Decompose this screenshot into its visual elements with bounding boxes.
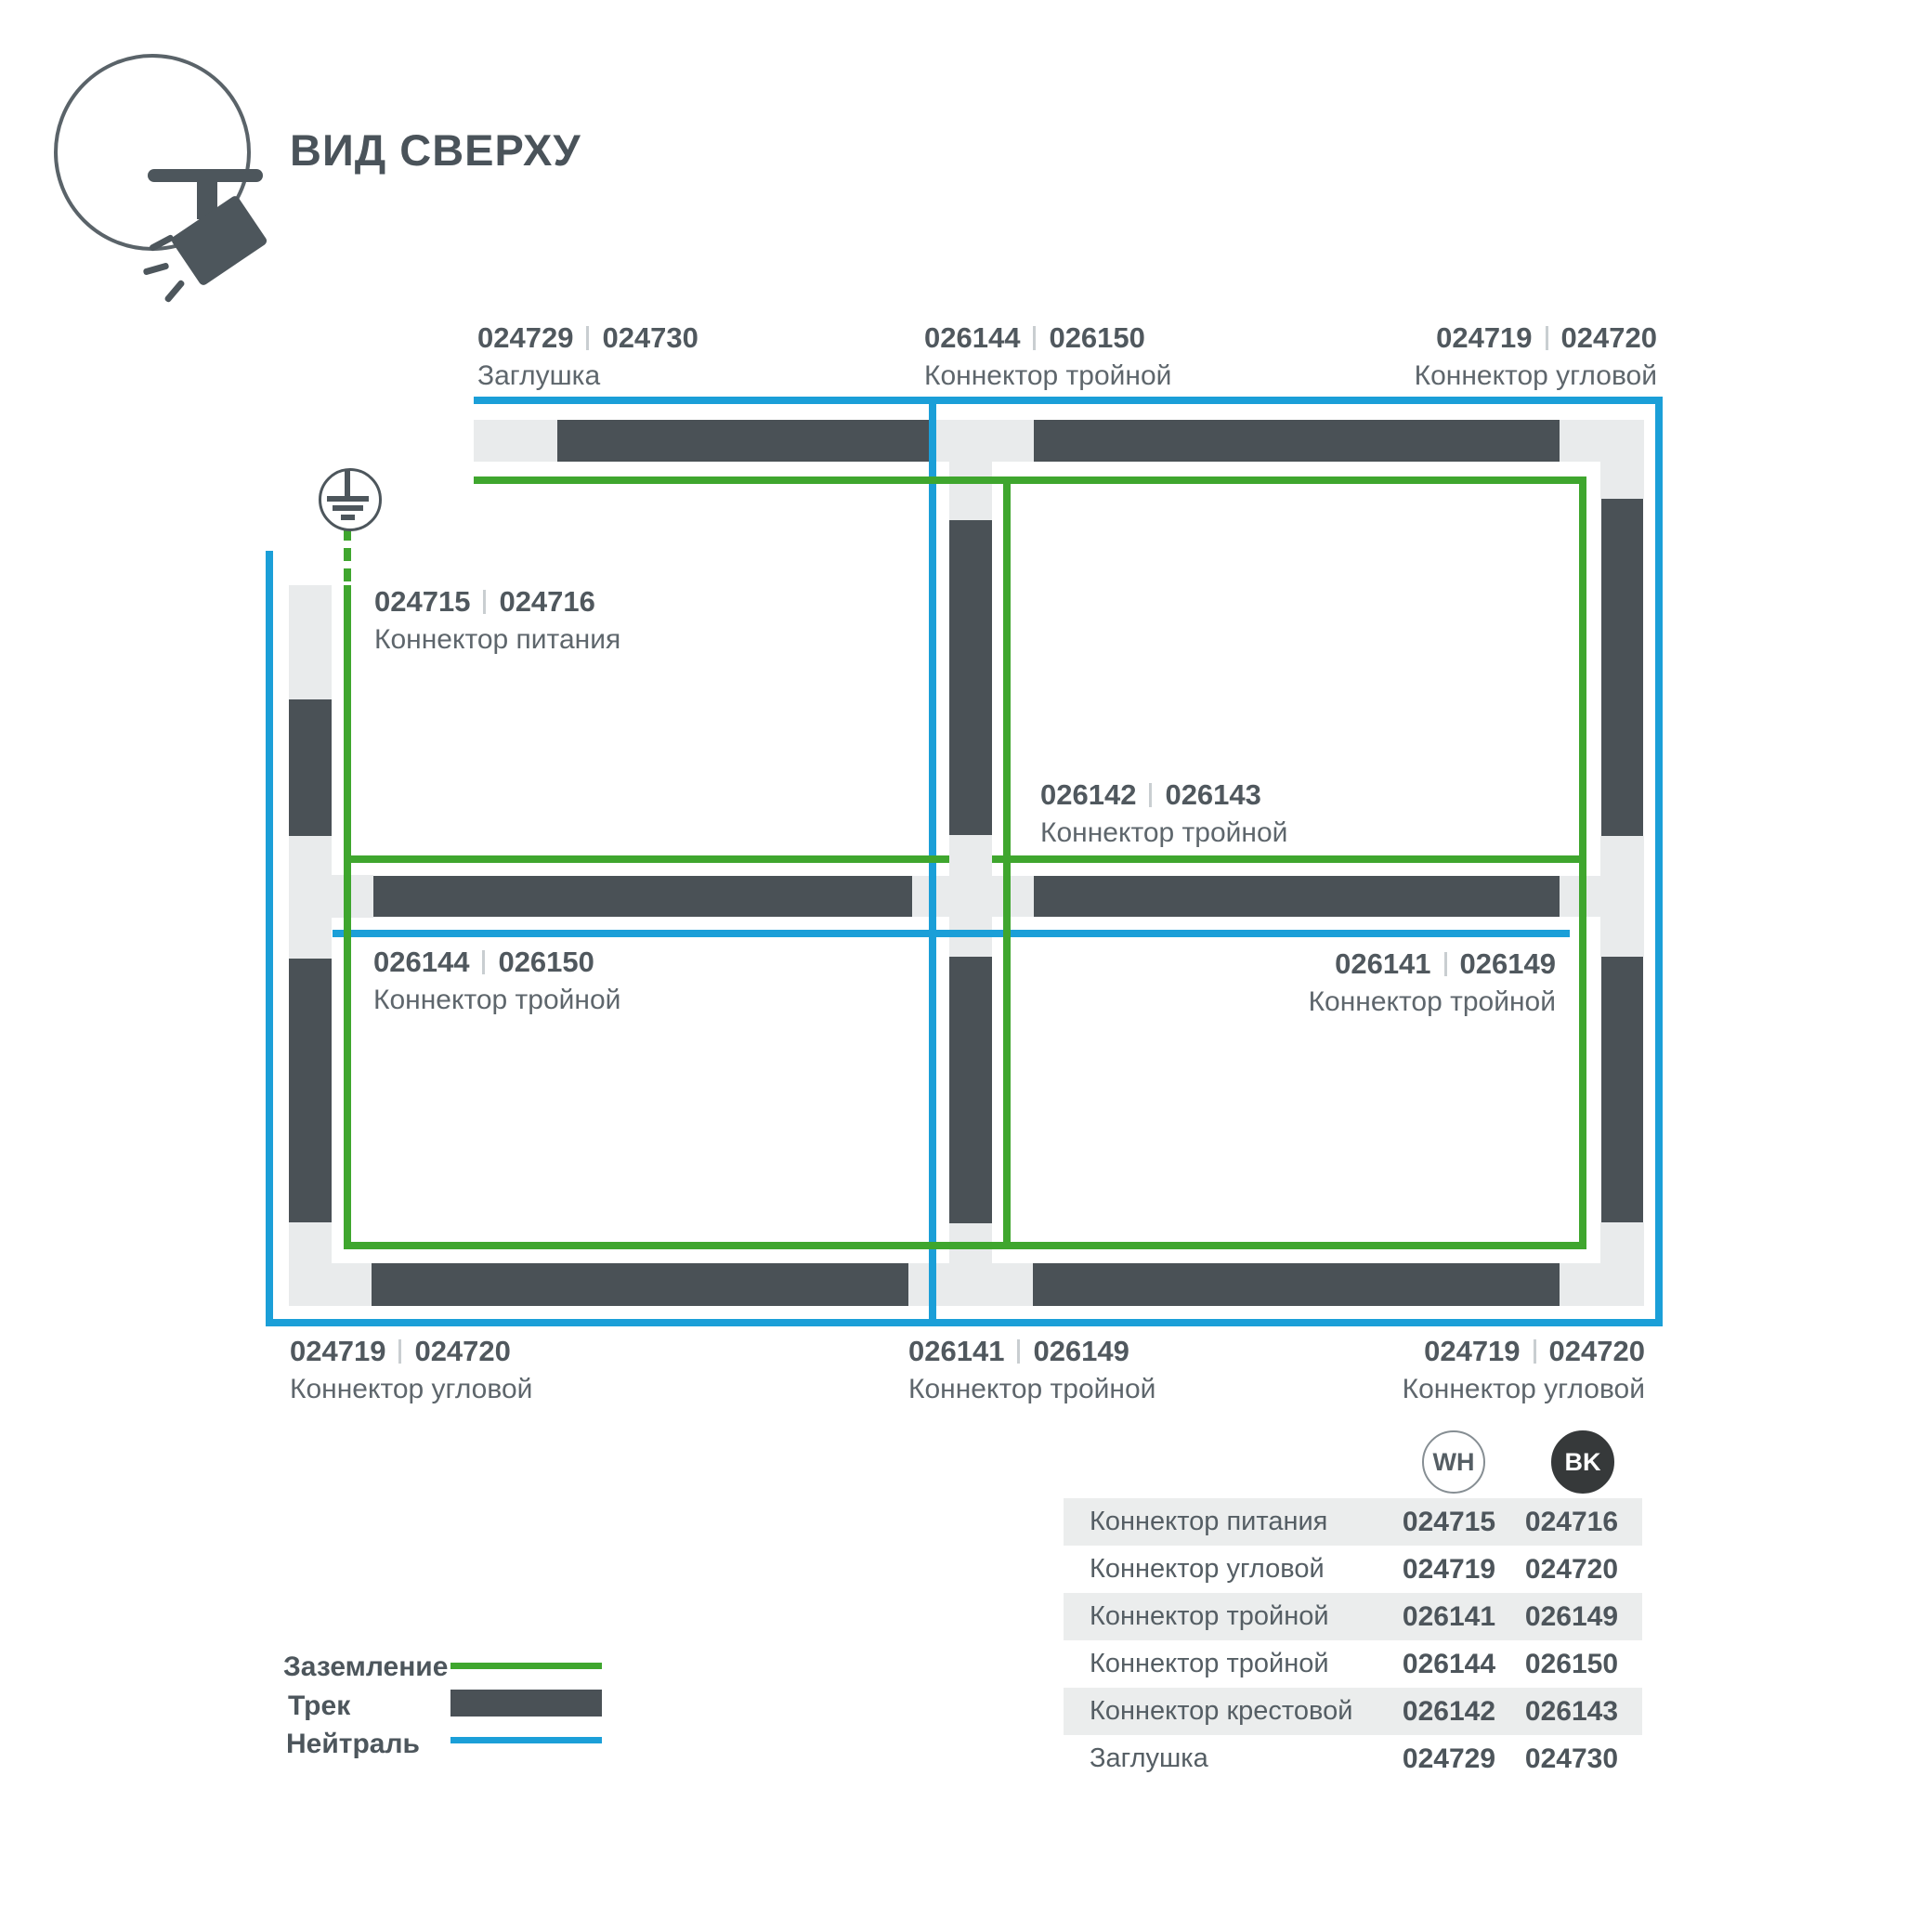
neutral-line-top	[474, 397, 1663, 404]
table-row: Коннектор тройной 026144 026150	[1064, 1640, 1642, 1688]
legend-label-track: Трек	[288, 1690, 350, 1722]
track-light-icon	[54, 54, 251, 251]
track-segment	[1601, 957, 1643, 1222]
page-title: ВИД СВЕРХУ	[290, 124, 581, 176]
table-row: Коннектор тройной 026141 026149	[1064, 1593, 1642, 1640]
corner-connector-block	[289, 1222, 332, 1306]
part-label-corner-bottom-left: 024719024720 Коннектор угловой	[290, 1335, 532, 1405]
parts-table-rows: Коннектор питания 024715 024716 Коннекто…	[1064, 1498, 1642, 1782]
end-cap-block	[474, 420, 557, 462]
track-segment	[372, 1263, 908, 1306]
icon-light-ray	[163, 280, 185, 304]
part-label-end-cap-top: 024729024730 Заглушка	[477, 321, 698, 392]
table-row: Коннектор крестовой 026142 026143	[1064, 1688, 1642, 1735]
part-label-corner-top-right: 024719024720 Коннектор угловой	[1415, 321, 1657, 392]
legend-track-swatch	[450, 1690, 602, 1717]
corner-connector-block	[332, 1263, 372, 1306]
ground-line-bottom	[344, 1242, 1586, 1249]
part-label-corner-bottom-right: 024719024720 Коннектор угловой	[1403, 1335, 1645, 1405]
part-label-cross-connector: 026142026143 Коннектор тройной	[1040, 778, 1287, 849]
track-segment	[557, 420, 929, 462]
part-label-tee-top: 026144026150 Коннектор тройной	[924, 321, 1171, 392]
power-feed-dashed-line	[344, 528, 351, 585]
legend-label-neutral: Нейтраль	[286, 1729, 420, 1760]
part-label-power-connector: 024715024716 Коннектор питания	[374, 585, 620, 656]
legend-label-ground: Заземление	[283, 1651, 448, 1683]
tee-connector-block	[908, 1263, 1033, 1306]
table-row: Коннектор питания 024715 024716	[1064, 1498, 1642, 1546]
legend-ground-swatch	[450, 1663, 602, 1669]
table-row: Заглушка 024729 024730	[1064, 1735, 1642, 1782]
track-segment	[289, 699, 332, 836]
corner-connector-block	[1600, 462, 1644, 499]
tee-connector-block	[1600, 836, 1644, 957]
ground-line-right	[1579, 476, 1586, 1249]
ground-line-middle-horizontal	[344, 855, 949, 863]
part-label-tee-bottom: 026141026149 Коннектор тройной	[908, 1335, 1155, 1405]
track-segment	[1601, 499, 1643, 836]
ground-symbol-bar	[341, 515, 355, 520]
tee-connector-block	[289, 836, 332, 959]
ground-symbol-bar	[327, 496, 369, 502]
ground-line-top	[474, 476, 1586, 484]
neutral-line-middle-horizontal	[333, 930, 1570, 937]
tee-connector-block	[332, 875, 373, 918]
table-row: Коннектор угловой 024719 024720	[1064, 1546, 1642, 1593]
cross-connector-block	[949, 835, 992, 876]
legend-neutral-swatch	[450, 1737, 602, 1743]
track-segment	[1034, 876, 1560, 917]
black-variant-badge: BK	[1551, 1430, 1614, 1494]
track-segment	[1033, 1263, 1560, 1306]
icon-light-ray	[149, 234, 175, 252]
page: ВИД СВЕРХУ 02472902	[0, 0, 1932, 1932]
tee-connector-block	[949, 462, 992, 520]
corner-connector-block	[1560, 1263, 1600, 1306]
tee-connector-block	[929, 420, 1034, 462]
ground-symbol-stem	[345, 470, 350, 499]
ground-symbol-bar	[333, 505, 363, 511]
track-segment	[949, 957, 992, 1223]
part-label-tee-left: 026144026150 Коннектор тройной	[373, 946, 620, 1016]
ground-line-middle-horizontal	[992, 855, 1586, 863]
neutral-line-left	[266, 551, 273, 1326]
white-variant-badge: WH	[1422, 1430, 1485, 1494]
neutral-line-right	[1655, 397, 1663, 1326]
track-segment	[1034, 420, 1560, 462]
icon-lamp-head	[170, 194, 268, 286]
track-segment	[289, 959, 332, 1222]
track-segment	[373, 876, 912, 917]
power-connector-block	[289, 585, 332, 699]
corner-connector-block	[1600, 1222, 1644, 1306]
icon-light-ray	[143, 262, 170, 275]
neutral-line-bottom	[266, 1319, 1663, 1326]
ground-line-middle-vertical	[1003, 476, 1011, 1249]
ground-line-left	[344, 585, 351, 1249]
corner-connector-block	[1560, 420, 1644, 462]
part-label-tee-right: 026141026149 Коннектор тройной	[1309, 947, 1556, 1018]
track-segment	[949, 520, 992, 835]
